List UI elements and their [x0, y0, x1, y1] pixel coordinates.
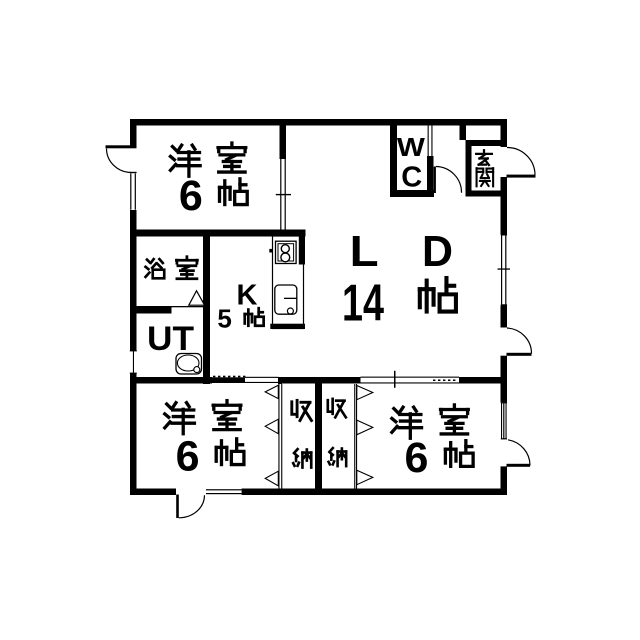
svg-text:UT: UT — [147, 320, 194, 358]
svg-text:W: W — [397, 132, 426, 162]
svg-text:L: L — [350, 227, 379, 276]
svg-text:D: D — [422, 227, 453, 276]
svg-text:6: 6 — [176, 432, 200, 480]
svg-text:6: 6 — [179, 172, 203, 220]
svg-text:C: C — [401, 161, 422, 193]
svg-text:5: 5 — [217, 304, 231, 334]
svg-text:6: 6 — [405, 434, 429, 482]
svg-text:K: K — [237, 280, 258, 312]
svg-text:14: 14 — [342, 274, 384, 332]
